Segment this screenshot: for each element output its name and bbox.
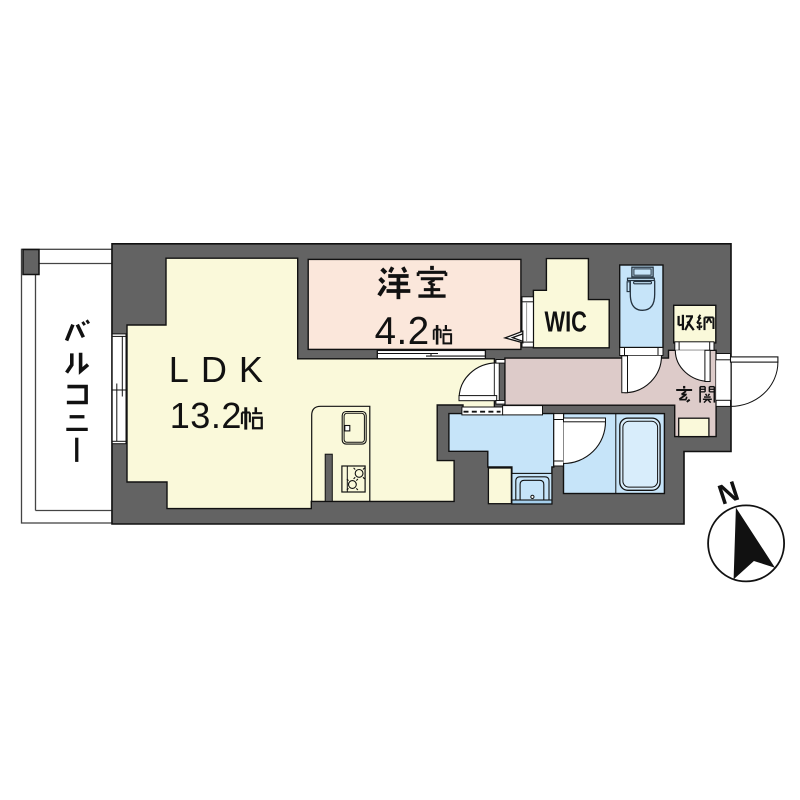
svg-text:4.2: 4.2 [375,310,430,353]
svg-text:13.2: 13.2 [170,395,242,436]
svg-text:LDK: LDK [169,349,275,390]
svg-text:WIC: WIC [545,307,587,339]
